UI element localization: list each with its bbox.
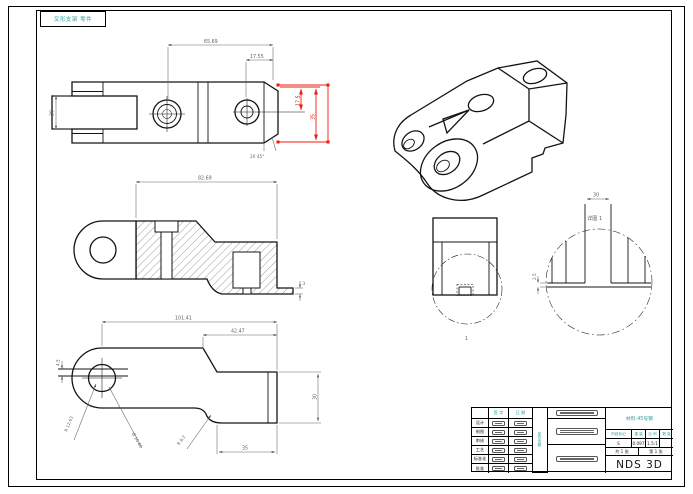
side-view-geometry[interactable] <box>58 348 277 423</box>
dim-top-h-small[interactable]: 17.5 <box>296 95 302 106</box>
top-view-selected-red[interactable]: 17.5 35 <box>277 84 330 144</box>
tb-role-process: 工艺 <box>472 446 489 455</box>
detail-title: 详图 1 <box>587 214 602 222</box>
dim-detail-width[interactable]: 30 <box>593 193 599 199</box>
tb-field-value-stage: S <box>606 439 632 448</box>
dim-side-radius1[interactable]: R 12.63 <box>63 415 74 432</box>
date-stamp <box>514 439 527 444</box>
view-top[interactable]: 65.69 17.55 30 2X 45° 17.5 35 <box>40 30 340 162</box>
tb-role-standard: 标准化 <box>472 455 489 464</box>
tb-field-value-scale: 1.5:1 <box>646 439 660 448</box>
drawing-sheet: 叉形支架 零件 <box>0 0 693 494</box>
date-stamp <box>514 466 527 471</box>
dim-side-dia1[interactable]: Ø 16.46 <box>131 432 144 449</box>
tb-company: NDS 3D <box>606 456 673 473</box>
dim-side-height[interactable]: 30 <box>313 394 319 400</box>
corner-note-text: 叉形支架 零件 <box>54 15 92 23</box>
tb-sign-header: 签 字 <box>489 408 509 419</box>
tb-cell-blank <box>472 408 489 419</box>
tb-field-label-weight: 重 量 <box>632 430 646 439</box>
tb-sig-cell <box>489 464 509 473</box>
drawing-number-stamp <box>556 410 598 417</box>
signature-stamp <box>492 439 505 444</box>
tb-date-header: 日 期 <box>509 408 533 419</box>
view-isometric[interactable] <box>385 55 600 205</box>
material-stamp <box>556 456 598 463</box>
tb-role-approve: 批准 <box>472 464 489 473</box>
dim-side-gap[interactable]: 4.5 <box>56 359 61 366</box>
isometric-geometry[interactable] <box>394 61 567 202</box>
tb-org-cell: 单位名称 <box>533 408 548 473</box>
view-section[interactable]: 82.69 3 <box>55 170 315 305</box>
dim-top-h-big[interactable]: 35 <box>311 114 317 120</box>
dim-side-radius2[interactable]: R 8.2 <box>176 434 187 446</box>
dim-side-width[interactable]: 35 <box>242 446 248 452</box>
section-view-geometry[interactable] <box>74 221 293 294</box>
tb-material-note: 材料:45号钢 <box>606 408 673 430</box>
tb-stamp-cell-top <box>548 408 606 419</box>
tb-date-cell <box>509 455 533 464</box>
part-name-stamp <box>556 428 598 435</box>
tb-sheet-index: 第 1 张 <box>639 448 673 456</box>
dim-section-thickness[interactable]: 3 <box>303 281 306 286</box>
tb-stamp-cell-bottom <box>548 445 606 473</box>
tb-field-label-scale: 比 例 <box>646 430 660 439</box>
dim-section-width[interactable]: 82.69 <box>198 176 212 182</box>
detail-callout-label: 1 <box>465 336 468 342</box>
signature-stamp <box>492 466 505 471</box>
date-stamp <box>514 448 527 453</box>
view-detail[interactable]: 1 30 详图 1 2.5 <box>425 185 675 350</box>
signature-stamp <box>492 457 505 462</box>
dim-top-slot[interactable]: 30 <box>50 110 56 116</box>
tb-stamp-cell-mid <box>548 419 606 445</box>
tb-sig-cell <box>489 437 509 446</box>
dim-top-total[interactable]: 65.69 <box>204 39 218 45</box>
dim-side-seg[interactable]: 42.47 <box>231 329 245 335</box>
detail-source-view[interactable]: 1 <box>432 218 502 342</box>
date-stamp <box>514 430 527 435</box>
tb-date-cell <box>509 464 533 473</box>
tb-role-design: 设计 <box>472 419 489 428</box>
tb-field-value-qty <box>660 439 673 448</box>
dim-top-chamfer[interactable]: 2X 45° <box>250 154 264 159</box>
tb-role-draft: 制图 <box>472 428 489 437</box>
tb-sig-cell <box>489 446 509 455</box>
tb-field-value-weight: 0.097 <box>632 439 646 448</box>
title-block: 签 字 日 期 单位名称 设计 制图 审核 工艺 标准化 批准 材料:45号钢 … <box>471 407 672 472</box>
tb-date-cell <box>509 428 533 437</box>
view-side[interactable]: 101.41 42.47 30 35 4.5 R 12.63 Ø 16.46 R… <box>50 310 340 460</box>
corner-note-box: 叉形支架 零件 <box>40 11 106 27</box>
dim-top-right[interactable]: 17.55 <box>250 54 264 60</box>
tb-sig-cell <box>489 428 509 437</box>
tb-field-label-qty: 数 量 <box>660 430 673 439</box>
tb-date-cell <box>509 437 533 446</box>
signature-stamp <box>492 448 505 453</box>
dim-side-length[interactable]: 101.41 <box>175 316 192 322</box>
tb-sig-cell <box>489 419 509 428</box>
dim-detail-thickness[interactable]: 2.5 <box>532 273 537 280</box>
signature-stamp <box>492 430 505 435</box>
tb-date-cell <box>509 419 533 428</box>
tb-role-check: 审核 <box>472 437 489 446</box>
tb-sheet-total: 共 1 张 <box>606 448 639 456</box>
date-stamp <box>514 457 527 462</box>
tb-date-cell <box>509 446 533 455</box>
detail-enlarged-view[interactable]: 30 详图 1 2.5 <box>532 193 652 336</box>
tb-field-label-stage: 阶段标记 <box>606 430 632 439</box>
date-stamp <box>514 421 527 426</box>
tb-sig-cell <box>489 455 509 464</box>
top-view-geometry[interactable] <box>52 82 305 143</box>
signature-stamp <box>492 421 505 426</box>
